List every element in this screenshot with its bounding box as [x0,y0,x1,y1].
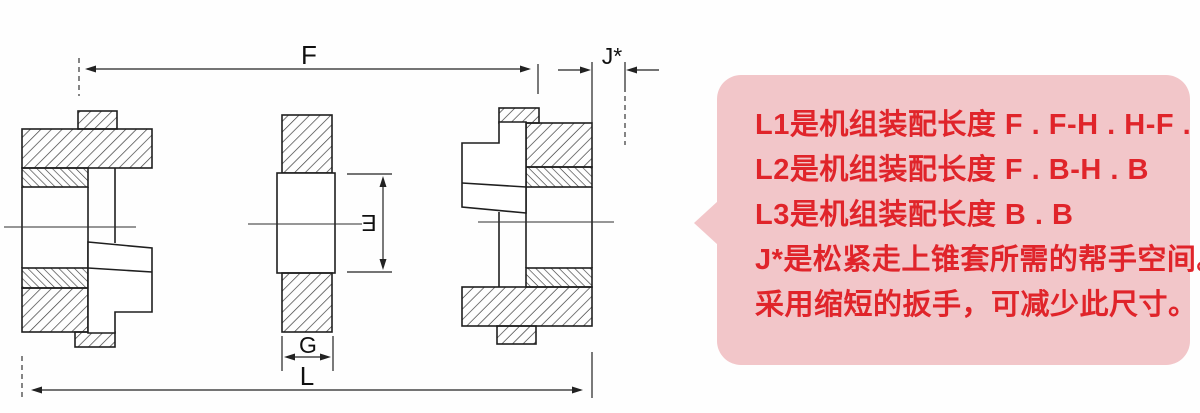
dimension-L: L [22,352,592,398]
dim-label-J: J* [602,43,623,69]
dimension-F: F [79,40,538,96]
note-line-4: J*是松紧走上锥套所需的帮手空间。 [755,244,1168,276]
note-line-1: L1是机组装配长度 F . F-H . H-F . H [755,109,1168,141]
dim-label-G: G [299,332,317,358]
dimension-E: E [347,174,392,272]
note-callout: L1是机组装配长度 F . F-H . H-F . H L2是机组装配长度 F … [717,75,1190,365]
dim-label-L: L [300,361,314,391]
note-line-5: 采用缩短的扳手，可减少此尺寸。 [755,289,1168,321]
note-line-2: L2是机组装配长度 F . B-H . B [755,154,1168,186]
left-coupling-half [22,111,152,347]
dim-label-F: F [301,40,317,70]
dim-label-E: E [361,210,376,236]
coupling-dimension-figure: F J* E G [0,0,1200,413]
technical-drawing: F J* E G [0,0,672,413]
callout-text: L1是机组装配长度 F . F-H . H-F . H L2是机组装配长度 F … [717,75,1190,321]
right-coupling-half [462,108,592,344]
callout-tail-icon [694,201,718,245]
note-line-3: L3是机组装配长度 B . B [755,199,1168,231]
